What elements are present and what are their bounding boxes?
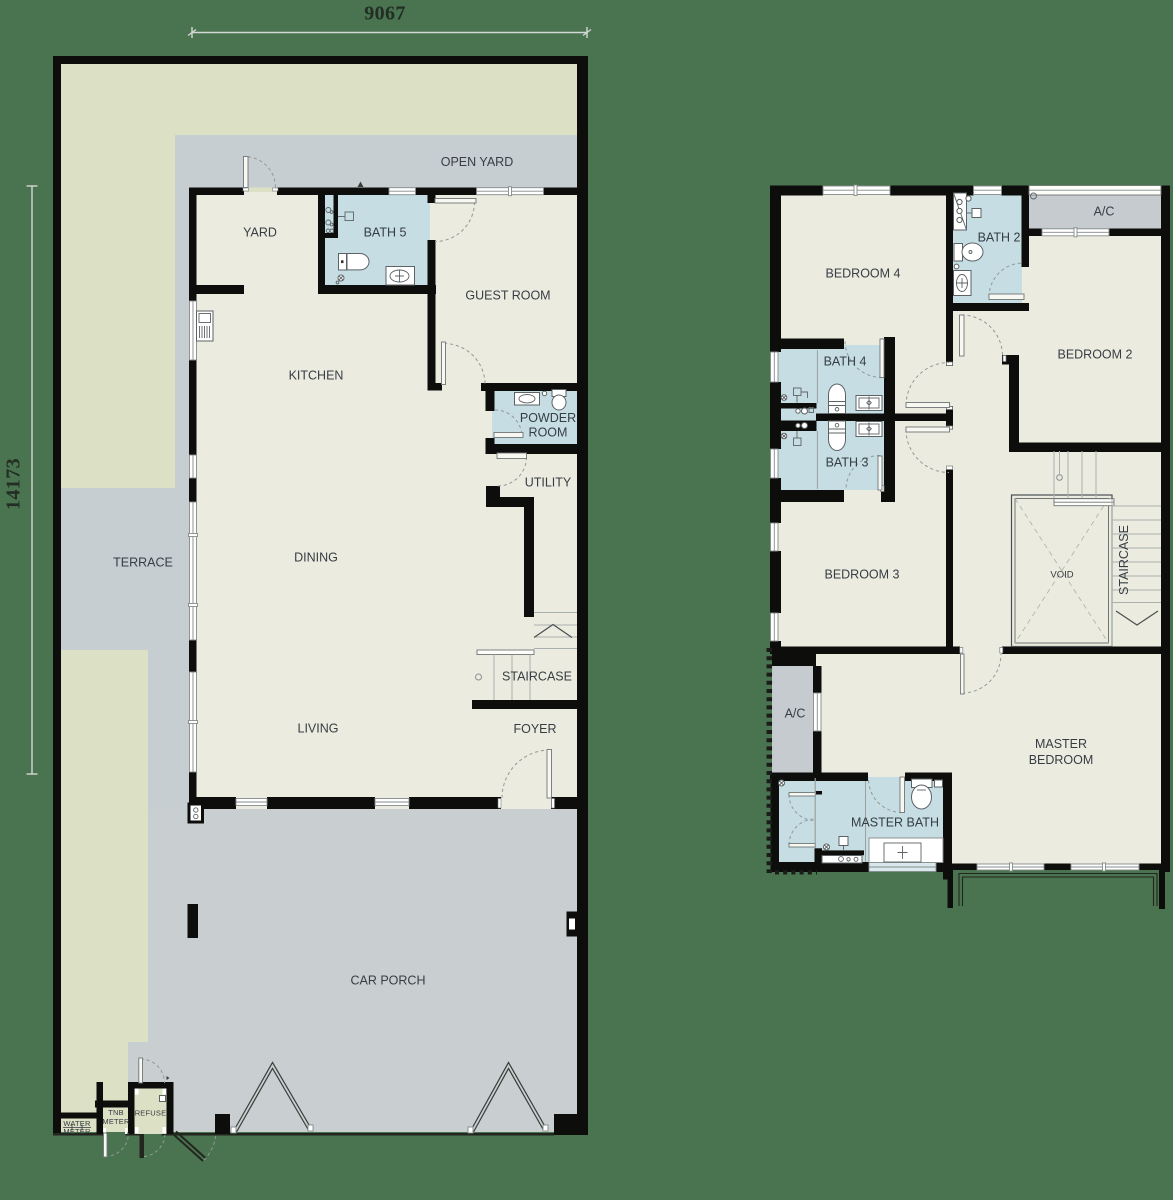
svg-text:DINING: DINING <box>294 551 338 565</box>
svg-text:METER: METER <box>63 1127 91 1136</box>
svg-text:BATH 4: BATH 4 <box>824 355 867 369</box>
svg-text:LIVING: LIVING <box>298 722 339 736</box>
svg-text:BEDROOM 2: BEDROOM 2 <box>1057 348 1132 362</box>
svg-text:YARD: YARD <box>243 226 277 240</box>
svg-text:OPEN YARD: OPEN YARD <box>441 155 513 169</box>
svg-text:TNB: TNB <box>108 1108 124 1117</box>
svg-text:UTILITY: UTILITY <box>525 476 572 490</box>
svg-text:VOID: VOID <box>1050 570 1073 581</box>
svg-text:BATH 5: BATH 5 <box>364 226 407 240</box>
svg-text:A/C: A/C <box>785 707 806 721</box>
svg-text:BEDROOM 3: BEDROOM 3 <box>824 568 899 582</box>
svg-text:CAR PORCH: CAR PORCH <box>350 974 425 988</box>
svg-text:KITCHEN: KITCHEN <box>289 369 344 383</box>
svg-text:POWDER: POWDER <box>520 411 576 425</box>
svg-text:REFUSE: REFUSE <box>135 1109 167 1118</box>
svg-text:14173: 14173 <box>3 458 25 510</box>
svg-text:BATH 2: BATH 2 <box>978 231 1021 245</box>
svg-text:GUEST ROOM: GUEST ROOM <box>465 289 550 303</box>
svg-text:9067: 9067 <box>364 3 406 25</box>
svg-text:BATH 3: BATH 3 <box>826 456 869 470</box>
svg-text:FOYER: FOYER <box>513 722 556 736</box>
svg-text:STAIRCASE: STAIRCASE <box>502 670 572 684</box>
svg-text:BEDROOM 4: BEDROOM 4 <box>825 267 900 281</box>
svg-text:BEDROOM: BEDROOM <box>1029 753 1094 767</box>
svg-text:STAIRCASE: STAIRCASE <box>1117 525 1131 595</box>
svg-text:MASTER BATH: MASTER BATH <box>851 816 939 830</box>
svg-text:A/C: A/C <box>1094 205 1115 219</box>
svg-text:TERRACE: TERRACE <box>113 556 173 570</box>
svg-text:METER: METER <box>102 1117 130 1126</box>
svg-text:MASTER: MASTER <box>1035 737 1087 751</box>
svg-text:ROOM: ROOM <box>529 426 568 440</box>
